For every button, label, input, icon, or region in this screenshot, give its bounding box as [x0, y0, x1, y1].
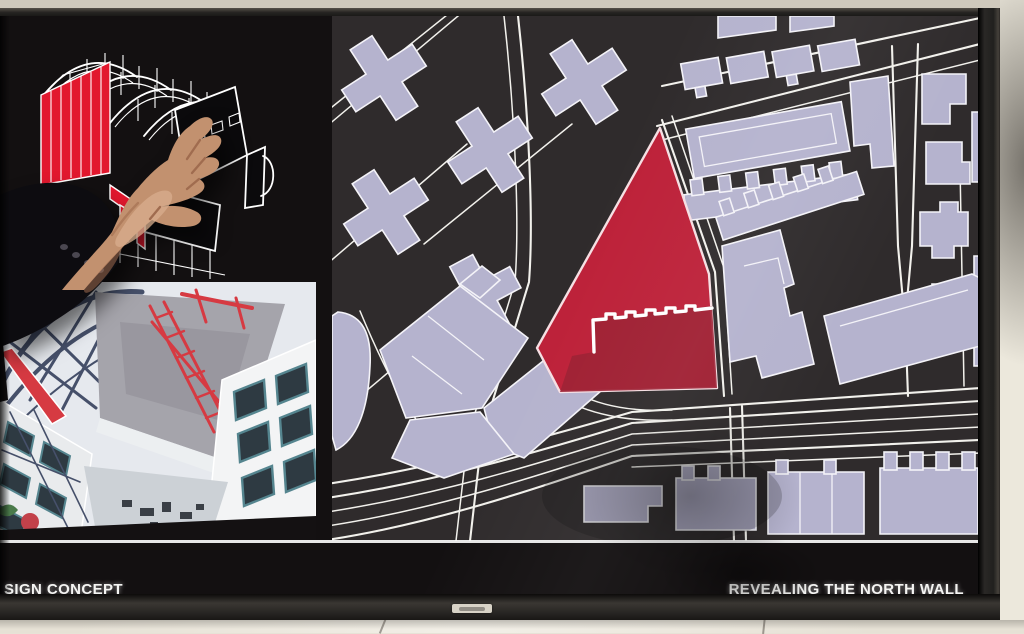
tv-bezel-right — [978, 8, 1000, 620]
tv-brand-plate — [452, 604, 492, 613]
tv-bezel-bottom — [0, 594, 1000, 620]
presentation-slide: SIGN CONCEPT REVEALING THE NORTH WALL — [0, 16, 978, 594]
presenter-hand — [0, 85, 252, 363]
slide-title-bar: SIGN CONCEPT REVEALING THE NORTH WALL — [0, 543, 978, 594]
wall-right-with-shadow — [1000, 0, 1024, 633]
photo-wheelbarrow — [21, 513, 39, 531]
photo-of-presentation-tv: { "screen": { "bottom_bar": { "left_titl… — [0, 0, 1024, 633]
site-plan-map — [332, 16, 978, 541]
slide-title-left: SIGN CONCEPT — [4, 581, 123, 594]
slide-title-right: REVEALING THE NORTH WALL — [729, 581, 964, 594]
tv-bezel-top — [0, 8, 1000, 16]
tv-brand-logo — [459, 607, 485, 611]
wall-below-tv — [0, 620, 1024, 633]
